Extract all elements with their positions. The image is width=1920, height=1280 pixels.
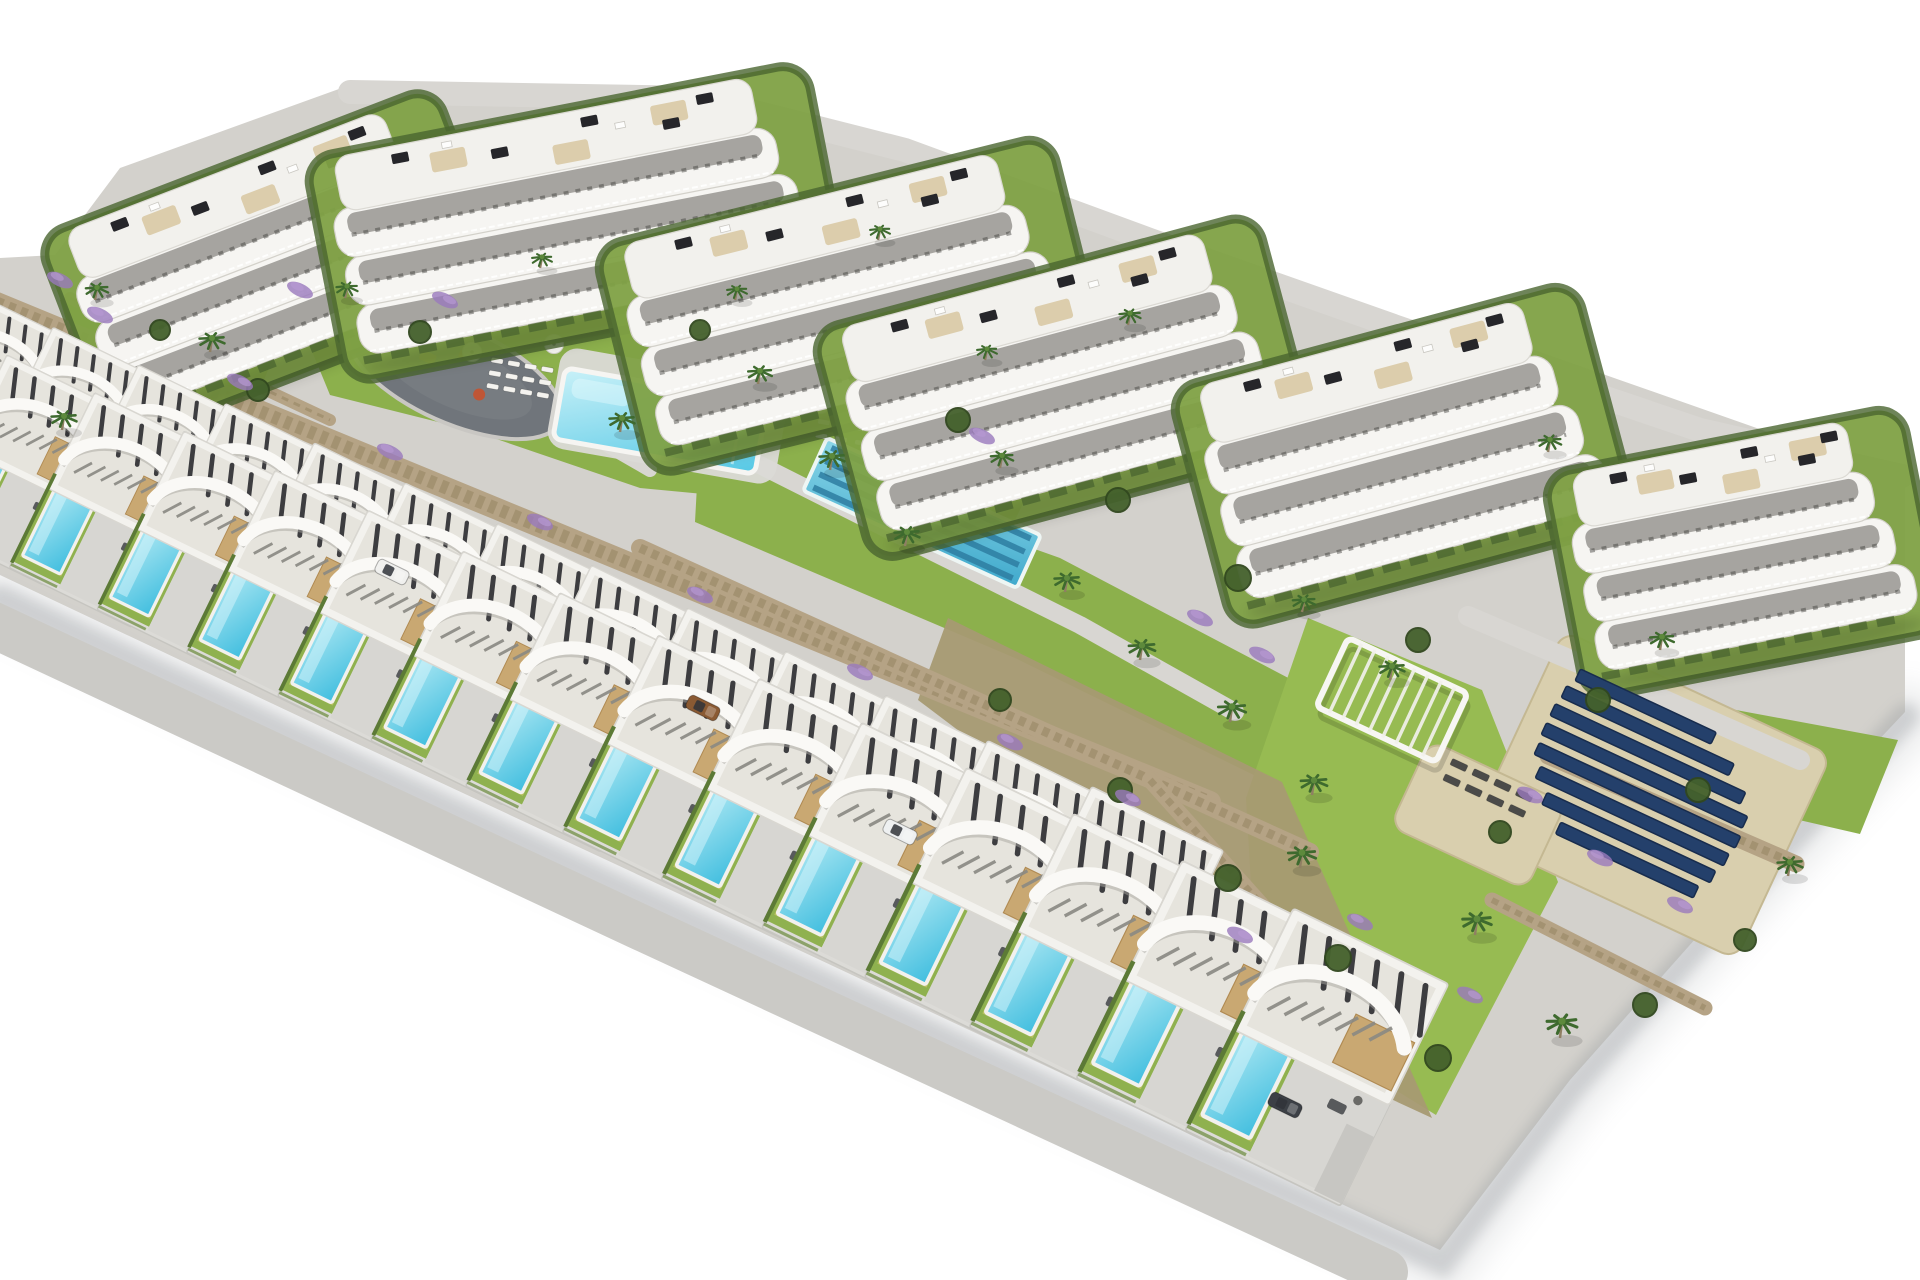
palm-shadow (1782, 874, 1808, 884)
shrub (409, 321, 431, 343)
palm-shadow (875, 239, 896, 247)
shrub (989, 689, 1011, 711)
palm-crown (1301, 597, 1306, 602)
palm-shadow (1305, 793, 1332, 804)
shrub (1586, 688, 1610, 712)
palm-shadow (614, 430, 640, 440)
palm-crown (1474, 915, 1481, 922)
palm-crown (1547, 437, 1552, 442)
palm-shadow (824, 468, 850, 478)
palm-crown (209, 335, 215, 341)
shrub (1325, 945, 1351, 971)
palm-crown (878, 226, 883, 231)
shrub (1425, 1045, 1451, 1071)
shrub (1633, 993, 1657, 1017)
palm-shadow (1297, 611, 1320, 620)
palm-shadow (982, 359, 1003, 367)
palm-crown (1787, 859, 1793, 865)
palm-crown (757, 368, 763, 374)
palm-shadow (1124, 324, 1146, 333)
palm-crown (1311, 777, 1317, 783)
palm-shadow (90, 299, 113, 308)
shrub (1734, 929, 1756, 951)
palm-crown (344, 284, 349, 289)
palm-shadow (1467, 932, 1497, 944)
render-canvas (0, 0, 1920, 1280)
shrub (150, 320, 170, 340)
palm-crown (904, 529, 910, 535)
palm-shadow (1223, 720, 1252, 731)
palm-crown (1558, 1018, 1565, 1025)
palm-crown (61, 413, 67, 419)
palm-shadow (753, 382, 778, 392)
palm-shadow (204, 350, 230, 360)
palm-shadow (537, 267, 558, 275)
palm-shadow (56, 428, 82, 438)
aerial-development-render (0, 0, 1920, 1280)
palm-shadow (341, 297, 363, 306)
shrub (1489, 821, 1511, 843)
palm-shadow (1384, 678, 1410, 688)
palm-crown (829, 453, 835, 459)
palm-shadow (1551, 1035, 1582, 1047)
palm-shadow (1543, 451, 1566, 460)
palm-crown (1139, 642, 1145, 648)
shrub (1686, 778, 1710, 802)
palm-shadow (1133, 658, 1160, 669)
palm-crown (1127, 311, 1132, 316)
palm-shadow (995, 467, 1018, 476)
palm-shadow (899, 544, 925, 554)
shrub (1215, 865, 1241, 891)
shrub (946, 408, 970, 432)
palm-crown (985, 346, 990, 351)
palm-crown (1299, 849, 1306, 856)
palm-crown (1064, 575, 1070, 581)
palm-crown (735, 286, 740, 291)
palm-shadow (1655, 648, 1680, 658)
shrub (690, 320, 710, 340)
shrub (1406, 628, 1430, 652)
palm-crown (1389, 663, 1395, 669)
palm-crown (94, 285, 99, 290)
palm-crown (999, 453, 1004, 458)
shrub (1106, 488, 1130, 512)
palm-shadow (1059, 590, 1085, 600)
palm-crown (1659, 634, 1665, 640)
palm-shadow (1293, 866, 1322, 877)
palm-crown (540, 254, 545, 259)
palm-crown (619, 415, 625, 421)
palm-shadow (732, 299, 753, 307)
palm-crown (1229, 703, 1236, 710)
shrub (1225, 565, 1251, 591)
